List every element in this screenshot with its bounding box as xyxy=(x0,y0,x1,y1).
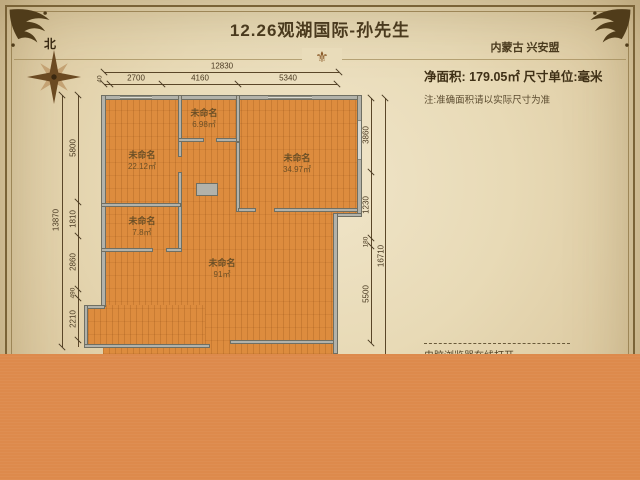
room-area: 22.12㎡ xyxy=(128,161,156,172)
room-area: 7.8㎡ xyxy=(128,227,155,238)
room-name: 未命名 xyxy=(128,148,156,161)
dimension-label: 2210 xyxy=(69,310,78,328)
compass-rose-icon xyxy=(27,50,81,104)
region-label: 内蒙古 兴安盟 xyxy=(420,39,630,55)
wall xyxy=(166,248,182,252)
wall xyxy=(178,172,182,252)
floor-plan-sheet: 12.26观湖国际-孙先生 ⚜ 北 内蒙古 兴安盟 净面积: 179.05㎡ 尺… xyxy=(0,0,640,480)
wall xyxy=(101,203,181,207)
page-title: 12.26观湖国际-孙先生 xyxy=(0,16,640,41)
dimension-label: 40 xyxy=(97,75,104,82)
room[interactable]: 未命名 34.97㎡ xyxy=(283,151,311,175)
wall xyxy=(238,208,256,212)
wall xyxy=(101,95,106,307)
dimension-label: 5340 xyxy=(279,74,297,83)
room-name: 未命名 xyxy=(283,151,311,164)
orange-overlay-block xyxy=(0,354,640,480)
room[interactable]: 未命名 22.12㎡ xyxy=(128,148,156,172)
dimension-line xyxy=(104,84,337,85)
wall xyxy=(86,305,105,309)
wall xyxy=(333,213,338,354)
dimension-label: 490 xyxy=(70,288,77,299)
wall xyxy=(236,95,240,142)
wall xyxy=(230,340,334,344)
room-area: 34.97㎡ xyxy=(283,164,311,175)
wall xyxy=(101,248,153,252)
wall xyxy=(274,208,358,212)
wall xyxy=(84,344,210,348)
room-name: 未命名 xyxy=(208,256,235,269)
room[interactable]: 未命名 6.98㎡ xyxy=(190,106,217,130)
room-name: 未命名 xyxy=(190,106,217,119)
floor-area-balcony xyxy=(88,305,205,348)
window xyxy=(120,96,152,99)
wall xyxy=(178,138,204,142)
dimension-label: 2860 xyxy=(69,253,78,271)
column xyxy=(196,183,218,196)
window xyxy=(268,96,312,99)
bottom-dashed-divider xyxy=(424,343,570,344)
dimension-label: 1230 xyxy=(362,196,371,214)
dimension-label: 4160 xyxy=(191,74,209,83)
room-area: 91㎡ xyxy=(208,269,235,280)
dimension-line xyxy=(371,98,372,343)
room-name: 未命名 xyxy=(128,214,155,227)
wall xyxy=(236,142,240,212)
dimension-label: 5500 xyxy=(362,285,371,303)
accuracy-note: 注:准确面积请以实际尺寸为准 xyxy=(424,92,550,106)
dimension-label: 5800 xyxy=(69,139,78,157)
dimension-label: 180 xyxy=(363,237,370,248)
room-area: 6.98㎡ xyxy=(190,119,217,130)
dimension-label: 2700 xyxy=(127,74,145,83)
dimension-line xyxy=(78,95,79,347)
net-area-text: 净面积: 179.05㎡ 尺寸单位:毫米 xyxy=(424,66,603,85)
dimension-label: 1810 xyxy=(69,210,78,228)
window xyxy=(358,120,361,160)
wall xyxy=(84,305,88,348)
dimension-label: 12830 xyxy=(211,62,233,71)
room[interactable]: 未命名 91㎡ xyxy=(208,256,235,280)
fleur-de-lis-icon: ⚜ xyxy=(302,48,342,66)
dimension-line xyxy=(385,98,386,354)
room[interactable]: 未命名 7.8㎡ xyxy=(128,214,155,238)
dimension-label: 3860 xyxy=(362,126,371,144)
dimension-line xyxy=(62,95,63,347)
wall xyxy=(178,95,182,157)
dimension-label: 16710 xyxy=(377,245,386,267)
dimension-label: 13870 xyxy=(52,209,61,231)
